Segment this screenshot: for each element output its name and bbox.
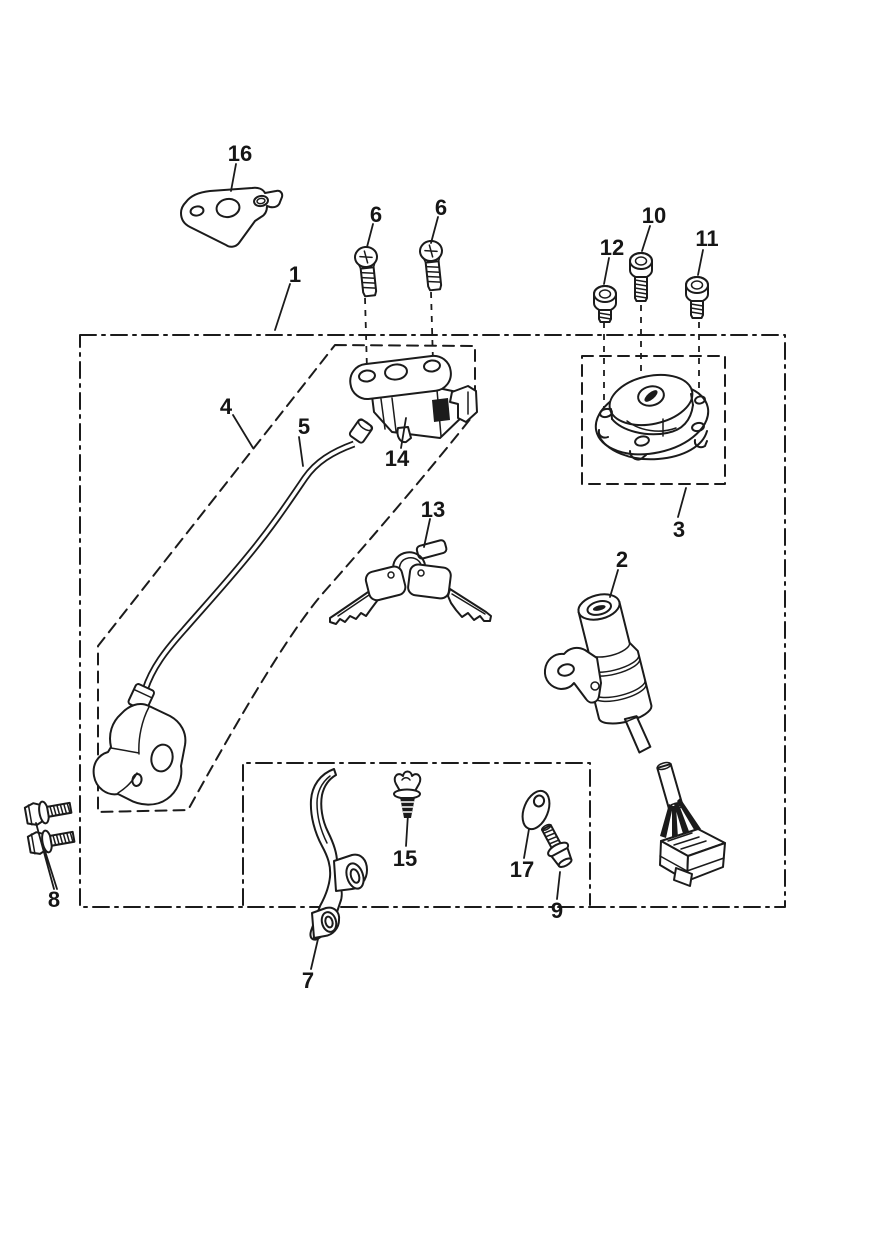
callout-8: 8: [48, 887, 60, 912]
callout-4: 4: [220, 394, 233, 419]
part-12-screw: [594, 286, 616, 322]
key-head: [364, 565, 407, 602]
part-2-wiring: [656, 761, 725, 886]
connector: [660, 829, 725, 886]
mounting-ear: [545, 648, 601, 703]
part-6-screw-b: [419, 240, 446, 291]
callout-5: 5: [298, 414, 310, 439]
part-9-screw: [536, 820, 577, 870]
callout-3: 3: [673, 517, 685, 542]
callout-11: 11: [695, 226, 718, 251]
part-13-keys: [330, 539, 491, 624]
part-6-screw-a: [354, 246, 381, 297]
callout-15: 15: [393, 846, 417, 871]
callout-17: 17: [510, 857, 534, 882]
callout-1: 1: [289, 262, 301, 287]
callout-14: 14: [385, 446, 410, 471]
callout-13: 13: [421, 497, 445, 522]
part-10-screw: [630, 253, 652, 301]
callout-12: 12: [600, 235, 624, 260]
part-11-screw: [686, 277, 708, 318]
key-head: [407, 564, 451, 600]
exploded-parts-diagram: 16 6 6 1 12 10 11 4 5 14 13 3 2 8 7 15 1…: [0, 0, 884, 1250]
part-4-lock-mechanism: [94, 683, 186, 805]
part-15-clip: [394, 772, 420, 819]
part-2-ignition-switch: [545, 589, 662, 760]
parts-diagram-page: 16 6 6 1 12 10 11 4 5 14 13 3 2 8 7 15 1…: [0, 0, 884, 1250]
part-3-fuel-cap: [589, 368, 715, 464]
callout-10: 10: [642, 203, 666, 228]
part-16-bracket-plate: [181, 188, 282, 247]
part-7-bracket-arm: [310, 769, 367, 940]
latch-slot: [432, 398, 450, 422]
callout-9: 9: [551, 898, 563, 923]
callout-6b: 6: [435, 195, 447, 220]
callout-2: 2: [616, 547, 628, 572]
callout-16: 16: [228, 141, 252, 166]
callout-labels: 16 6 6 1 12 10 11 4 5 14 13 3 2 8 7 15 1…: [48, 141, 719, 993]
callout-7: 7: [302, 968, 314, 993]
cable-end-fitting: [349, 418, 374, 444]
part-8-bolts: [24, 797, 75, 855]
part-5-cable: [145, 418, 374, 690]
callout-6a: 6: [370, 202, 382, 227]
